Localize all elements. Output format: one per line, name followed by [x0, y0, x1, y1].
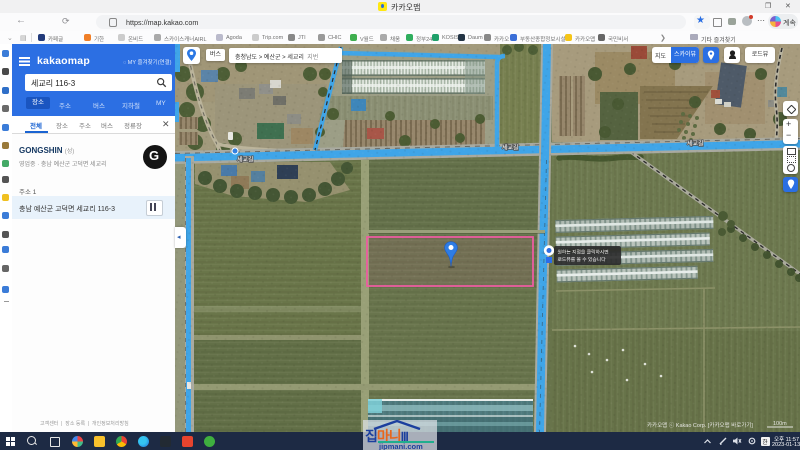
svg-text:로드뷰를 볼 수 있습니다: 로드뷰를 볼 수 있습니다 — [558, 256, 607, 263]
svg-text:세교길: 세교길 — [237, 156, 254, 164]
svg-text:원하는 지점을 클릭하시면: 원하는 지점을 클릭하시면 — [558, 249, 609, 256]
svg-text:100m: 100m — [773, 421, 787, 427]
svg-text:카카오맵 ⓒ Kakao Corp. [카카오맵 바로가: 카카오맵 ⓒ Kakao Corp. [카카오맵 바로가기] — [647, 421, 753, 429]
svg-text:세교길: 세교길 — [502, 144, 519, 152]
svg-text:세교길: 세교길 — [687, 140, 704, 148]
